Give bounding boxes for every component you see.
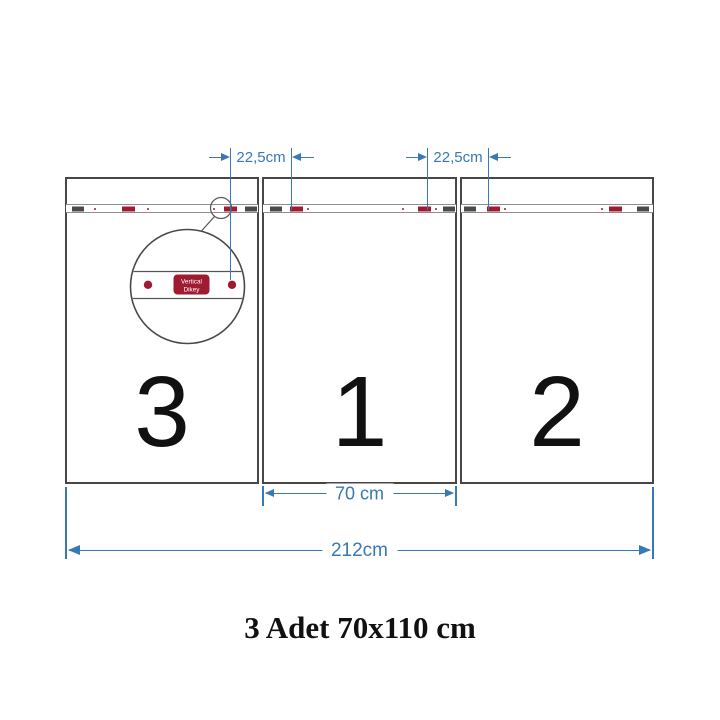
hanger-dot (402, 208, 404, 210)
dimension-extension-line (230, 148, 231, 280)
hanger-spacing-label-right: 22,5cm (426, 149, 490, 166)
hanger-bracket-red (609, 206, 622, 211)
magnifier-connector-line (201, 217, 215, 232)
hanger-bracket-dark (443, 206, 455, 211)
hanger-rail (461, 204, 653, 213)
hanger-dot (307, 208, 309, 210)
hanger-bracket-dark (464, 206, 476, 211)
panel-number: 1 (264, 362, 455, 462)
magnifier-source-circle (211, 198, 232, 219)
dimension-extension-line (65, 487, 67, 559)
hanger-dot (94, 208, 96, 210)
hanger-bracket-dark (270, 206, 282, 211)
panel-2: 2 (460, 177, 654, 484)
vertical-hanger-label-line1: Vertical (181, 279, 202, 286)
dimension-extension-line (652, 487, 654, 559)
hanger-bracket-dark (72, 206, 84, 211)
hanger-screw-dot-right (228, 281, 236, 289)
hanger-dot (601, 208, 603, 210)
panel-1: 1 (262, 177, 457, 484)
total-width-dimension: 212cm (65, 487, 654, 565)
hanger-dot (435, 208, 437, 210)
diagram-canvas: 3 1 2 (0, 0, 720, 720)
hanger-bracket-red (418, 206, 431, 211)
dimension-arrowhead (489, 153, 498, 161)
dimension-arrow-tail (498, 157, 511, 158)
vertical-hanger-label-line2: Dikey (184, 287, 201, 294)
panel-number: 2 (462, 362, 652, 462)
hanger-spacing-label-left: 22,5cm (229, 149, 293, 166)
hanger-screw-dot-left (144, 281, 152, 289)
product-caption: 3 Adet 70x110 cm (0, 610, 720, 646)
dimension-arrowhead (292, 153, 301, 161)
dimension-arrowhead (639, 545, 651, 555)
magnifier-detail: Vertical Dikey (120, 190, 255, 360)
total-width-label: 212cm (322, 540, 397, 562)
dimension-arrow-tail (301, 157, 314, 158)
panel-number: 3 (67, 362, 257, 462)
hanger-dot (504, 208, 506, 210)
dimension-arrowhead (68, 545, 80, 555)
hanger-bracket-dark (637, 206, 649, 211)
